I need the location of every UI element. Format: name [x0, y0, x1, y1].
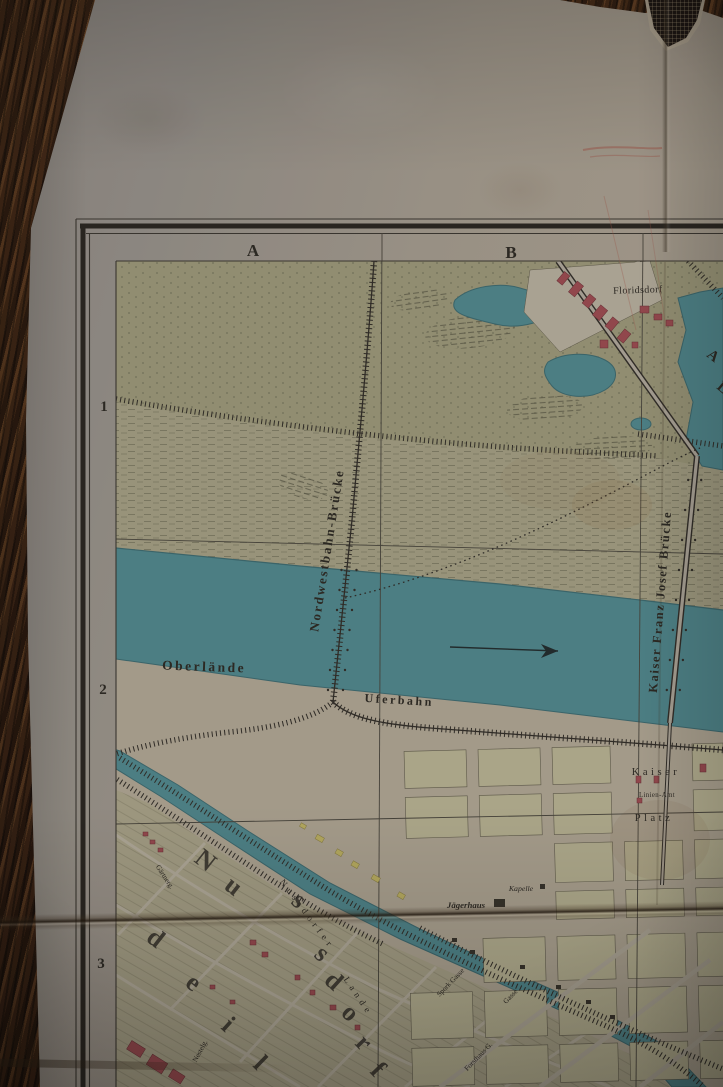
photo-of-old-map: A B 1 2 3 Floridsdorf Nordwestbahn-Brück…: [0, 0, 723, 1087]
photo-vignette: [0, 0, 723, 1087]
